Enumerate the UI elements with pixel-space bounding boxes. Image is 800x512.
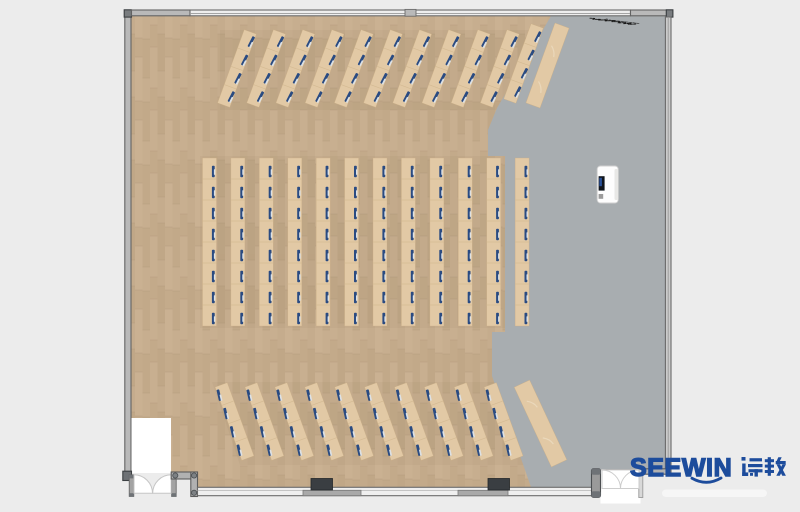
svg-text:SEEWIN: SEEWIN bbox=[630, 454, 732, 482]
